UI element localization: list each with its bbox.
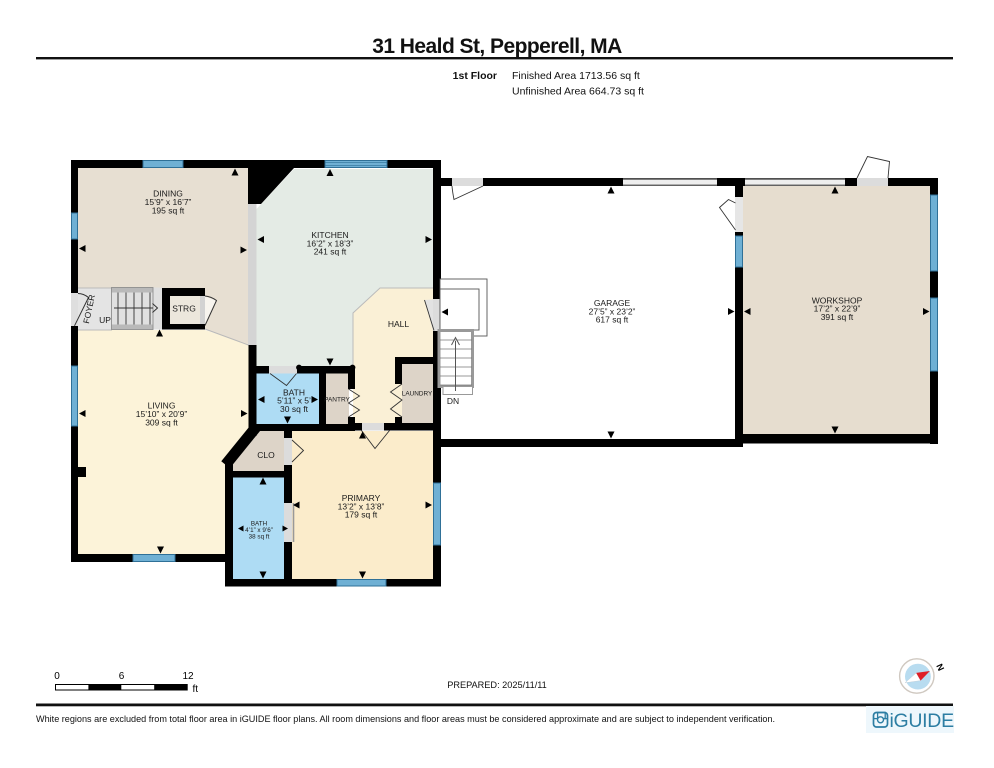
svg-text:6: 6 [119,671,125,682]
svg-text:30 sq ft: 30 sq ft [280,404,309,414]
svg-text:391 sq ft: 391 sq ft [821,312,854,322]
svg-text:PANTRY: PANTRY [324,397,350,404]
svg-text:STRG: STRG [172,304,196,314]
svg-text:1st Floor: 1st Floor [453,70,497,82]
svg-text:White regions are excluded fro: White regions are excluded from total fl… [36,714,775,724]
svg-text:309 sq ft: 309 sq ft [145,417,178,427]
svg-text:12: 12 [182,671,194,682]
svg-text:N: N [934,662,946,672]
svg-text:241 sq ft: 241 sq ft [314,247,347,257]
svg-text:Finished Area 1713.56 sq ft: Finished Area 1713.56 sq ft [512,70,640,82]
svg-text:CLO: CLO [257,450,275,460]
svg-text:617 sq ft: 617 sq ft [596,315,629,325]
svg-text:195 sq ft: 195 sq ft [152,205,185,215]
svg-text:DN: DN [447,396,459,406]
svg-text:31 Heald St, Pepperell, MA: 31 Heald St, Pepperell, MA [372,35,622,58]
svg-text:iGUIDE: iGUIDE [890,710,955,732]
svg-text:38 sq ft: 38 sq ft [249,534,270,541]
svg-text:PREPARED: 2025/11/11: PREPARED: 2025/11/11 [447,680,547,690]
svg-text:Unfinished Area 664.73 sq ft: Unfinished Area 664.73 sq ft [512,86,644,98]
svg-text:0: 0 [54,671,60,682]
svg-text:LAUNDRY: LAUNDRY [402,391,433,398]
svg-text:HALL: HALL [388,319,410,329]
svg-text:UP: UP [99,315,111,325]
svg-text:179 sq ft: 179 sq ft [345,510,378,520]
svg-text:ft: ft [193,684,199,695]
